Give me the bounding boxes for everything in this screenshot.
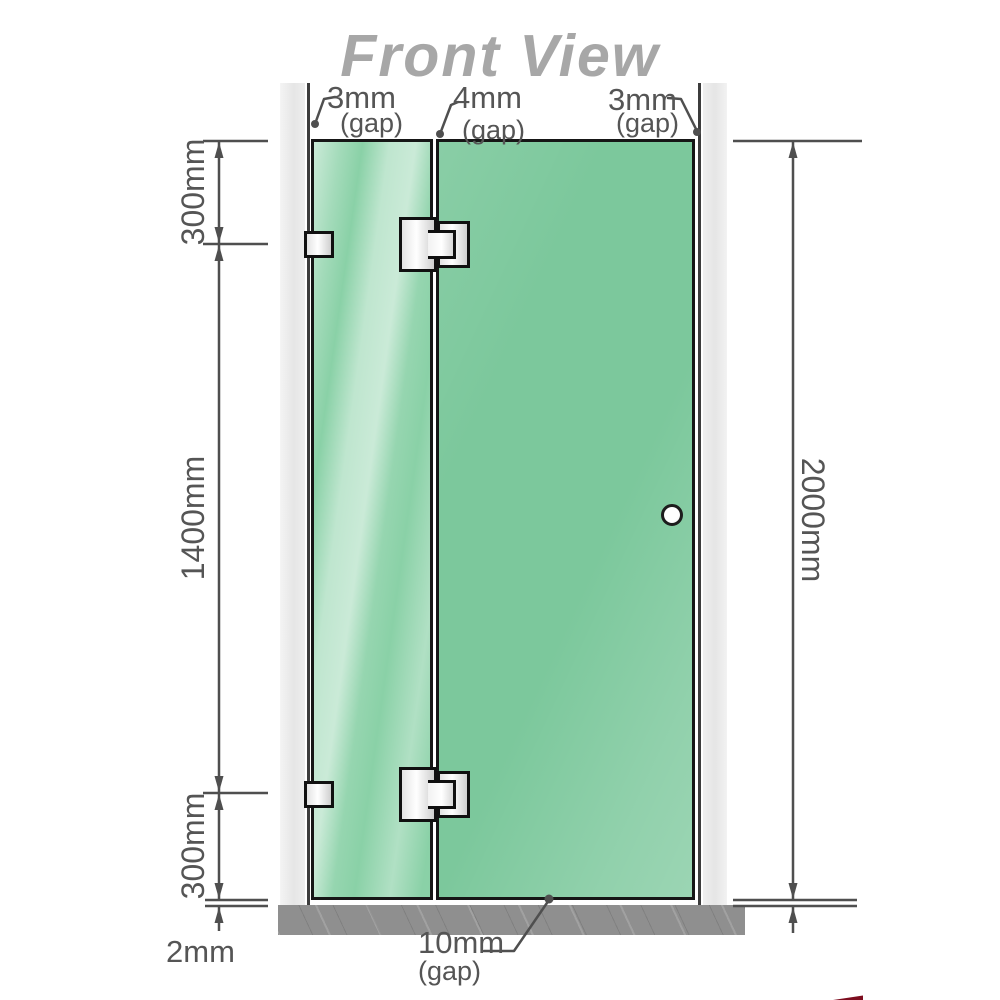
dimension-left-bottom: 300mm	[177, 793, 209, 900]
floor-base	[278, 905, 745, 935]
gap-middle-word: (gap)	[462, 117, 525, 144]
right-wall-edge-line	[698, 83, 701, 905]
left-dimension-line	[215, 141, 224, 931]
dimension-bottom-gap-word: (gap)	[418, 958, 481, 985]
diagram-canvas: Front View	[0, 0, 1000, 1000]
hinge-bottom-bridge	[428, 780, 456, 809]
hinge-top-bridge	[428, 230, 456, 259]
wall-bracket-bottom-icon	[304, 781, 334, 808]
door-handle-icon	[661, 504, 683, 526]
left-wall	[280, 83, 305, 905]
door-glass-panel	[436, 139, 695, 900]
wall-bracket-top-icon	[304, 231, 334, 258]
left-extension-ticks	[203, 141, 268, 906]
dimension-right-height: 2000mm	[797, 458, 829, 583]
right-wall	[703, 83, 727, 905]
logo-sliver-icon	[833, 995, 863, 1000]
dimension-left-top: 300mm	[177, 139, 209, 246]
gap-middle-value: 4mm	[453, 82, 522, 113]
gap-right-word: (gap)	[616, 110, 679, 137]
dimension-bottom-gap-value: 10mm	[418, 927, 504, 958]
dimension-left-middle: 1400mm	[177, 456, 209, 581]
gap-left-word: (gap)	[340, 110, 403, 137]
dimension-bottom-left: 2mm	[166, 936, 235, 967]
